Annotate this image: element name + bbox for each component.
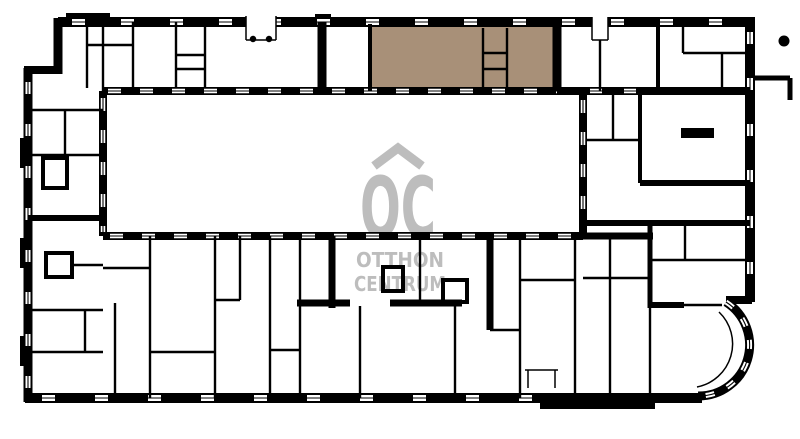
watermark-monogram: OC: [360, 159, 436, 257]
entrance-recess: [246, 16, 276, 40]
watermark-logo: OC OTTHON CENTRUM: [354, 148, 446, 296]
wall-recess: [592, 17, 608, 40]
highlighted-unit[interactable]: [370, 25, 554, 91]
flue-block: [681, 128, 714, 138]
floor-plan-page: OC OTTHON CENTRUM: [0, 0, 800, 439]
entrance-column: [250, 36, 256, 42]
entrance-column: [266, 36, 272, 42]
gate-column: [779, 36, 790, 47]
wall-segment: [540, 394, 655, 409]
floor-plan: OC OTTHON CENTRUM: [0, 0, 800, 439]
